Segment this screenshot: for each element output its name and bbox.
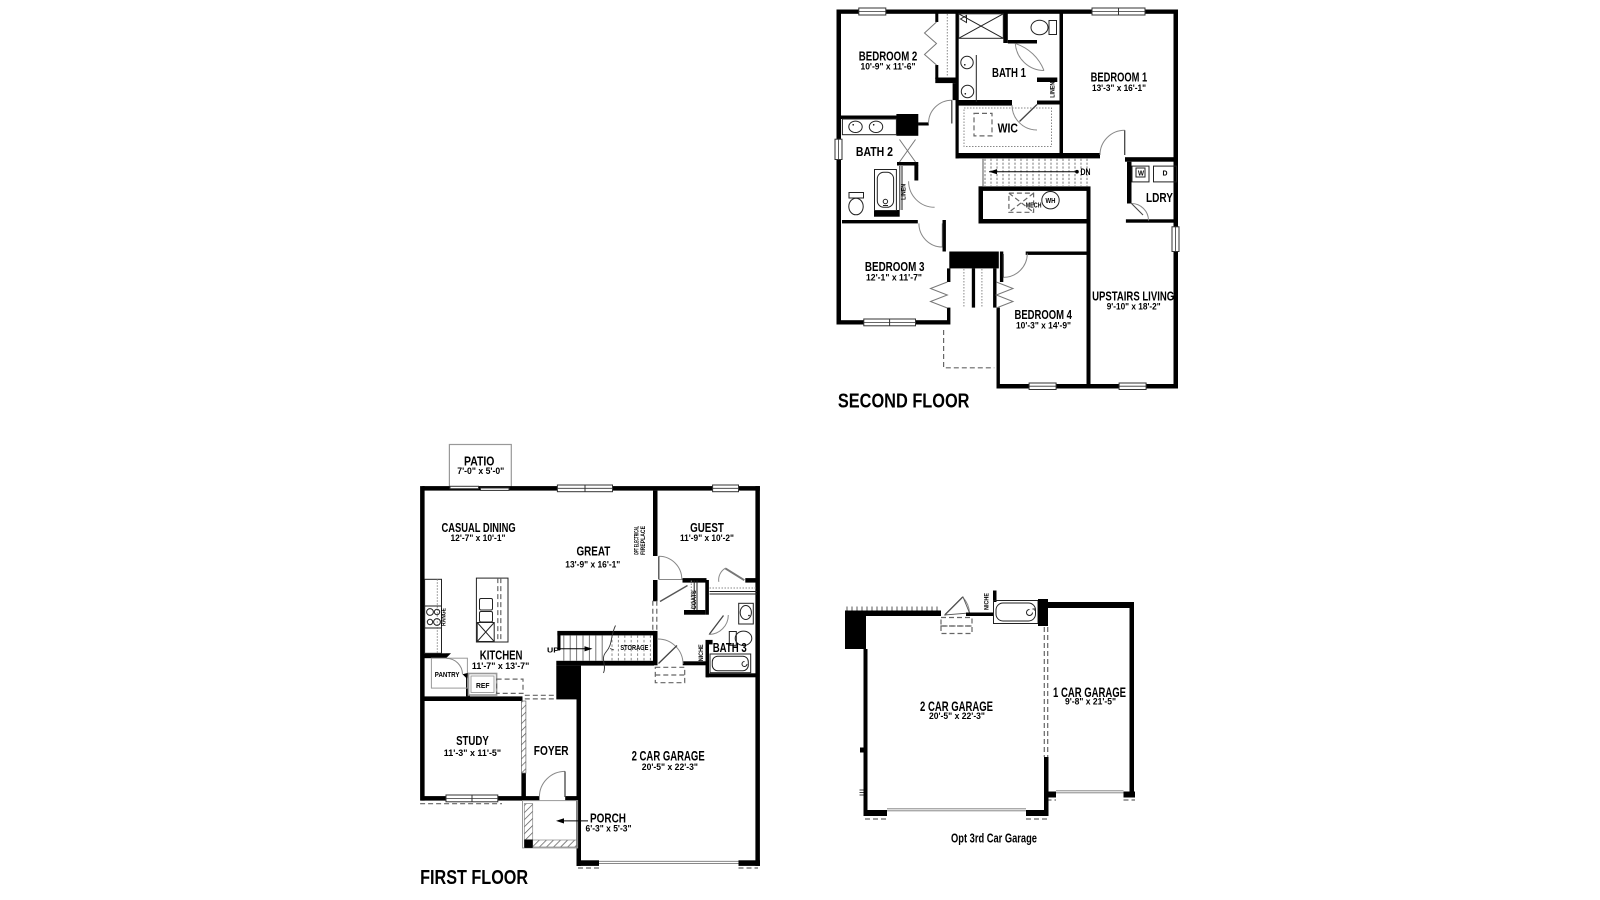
svg-text:Opt 3rd Car Garage: Opt 3rd Car Garage bbox=[951, 831, 1037, 846]
svg-text:7'-0" x 5'-0": 7'-0" x 5'-0" bbox=[457, 466, 504, 476]
svg-text:SECOND FLOOR: SECOND FLOOR bbox=[838, 390, 970, 413]
svg-text:NICHE: NICHE bbox=[984, 592, 991, 610]
svg-text:REF: REF bbox=[476, 683, 490, 690]
svg-text:WIC: WIC bbox=[998, 122, 1018, 136]
svg-text:RANGE: RANGE bbox=[441, 607, 448, 626]
svg-text:MECH: MECH bbox=[1026, 203, 1042, 210]
svg-text:10'-3" x 14'-9": 10'-3" x 14'-9" bbox=[1016, 321, 1071, 331]
svg-text:11'-9" x 10'-2": 11'-9" x 10'-2" bbox=[680, 533, 734, 543]
svg-text:WH: WH bbox=[1046, 198, 1056, 205]
svg-text:NICHE: NICHE bbox=[698, 644, 705, 662]
svg-text:BATH 2: BATH 2 bbox=[856, 145, 893, 159]
svg-text:PANTRY: PANTRY bbox=[435, 672, 460, 679]
svg-text:BATH 3: BATH 3 bbox=[713, 641, 747, 655]
svg-text:LINEN: LINEN bbox=[1050, 82, 1057, 98]
svg-text:LDRY: LDRY bbox=[1146, 191, 1174, 205]
svg-text:GREAT: GREAT bbox=[577, 545, 611, 559]
svg-text:BATH 1: BATH 1 bbox=[992, 66, 1026, 80]
svg-text:11'-3" x 11'-5": 11'-3" x 11'-5" bbox=[444, 748, 501, 758]
svg-text:6'-3" x 5'-3": 6'-3" x 5'-3" bbox=[586, 824, 632, 834]
svg-text:FOYER: FOYER bbox=[534, 744, 569, 758]
svg-text:DN: DN bbox=[1081, 167, 1091, 177]
svg-text:W: W bbox=[1138, 171, 1144, 178]
svg-text:13'-9" x 16'-1": 13'-9" x 16'-1" bbox=[565, 560, 620, 570]
svg-text:STORAGE: STORAGE bbox=[620, 645, 648, 652]
svg-text:COATS: COATS bbox=[691, 590, 698, 610]
svg-text:11'-7" x 13'-7": 11'-7" x 13'-7" bbox=[472, 661, 529, 671]
svg-text:12'-7" x 10'-1": 12'-7" x 10'-1" bbox=[451, 533, 506, 543]
svg-text:FIREPLACE: FIREPLACE bbox=[640, 525, 647, 555]
svg-text:9'-10" x 18'-2": 9'-10" x 18'-2" bbox=[1107, 302, 1161, 312]
svg-text:STUDY: STUDY bbox=[456, 734, 489, 748]
svg-text:20'-5" x 22'-3": 20'-5" x 22'-3" bbox=[642, 762, 698, 773]
svg-text:20'-5" x 22'-3": 20'-5" x 22'-3" bbox=[929, 711, 985, 722]
svg-text:9'-8" x 21'-5": 9'-8" x 21'-5" bbox=[1065, 697, 1116, 708]
svg-text:13'-3" x 16'-1": 13'-3" x 16'-1" bbox=[1092, 83, 1146, 93]
svg-text:LINEN: LINEN bbox=[901, 184, 908, 200]
svg-text:12'-1" x 11'-7": 12'-1" x 11'-7" bbox=[866, 272, 922, 282]
svg-text:FIRST FLOOR: FIRST FLOOR bbox=[420, 866, 528, 889]
svg-text:10'-9" x 11'-6": 10'-9" x 11'-6" bbox=[861, 62, 916, 72]
svg-text:UP: UP bbox=[547, 647, 559, 654]
svg-text:D: D bbox=[1163, 171, 1168, 178]
